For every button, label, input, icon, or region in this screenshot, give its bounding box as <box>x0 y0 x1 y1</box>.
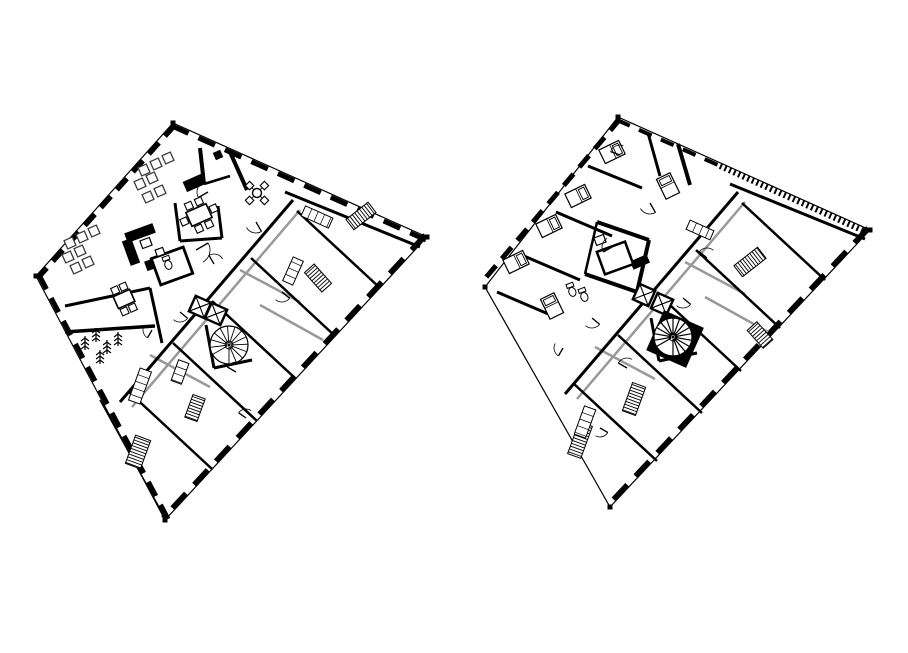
corner-post <box>868 228 873 233</box>
floor-plans-figure <box>0 0 908 653</box>
corner-post <box>608 505 613 510</box>
corner-post <box>425 235 430 240</box>
spiral-staircase <box>210 326 248 364</box>
corner-post <box>34 274 39 279</box>
corner-post <box>163 518 168 523</box>
floor-plans-page <box>0 0 908 653</box>
corner-post <box>616 115 621 120</box>
corner-post <box>483 285 488 290</box>
corner-post <box>171 121 176 126</box>
floor-plan-canvas <box>0 0 908 653</box>
